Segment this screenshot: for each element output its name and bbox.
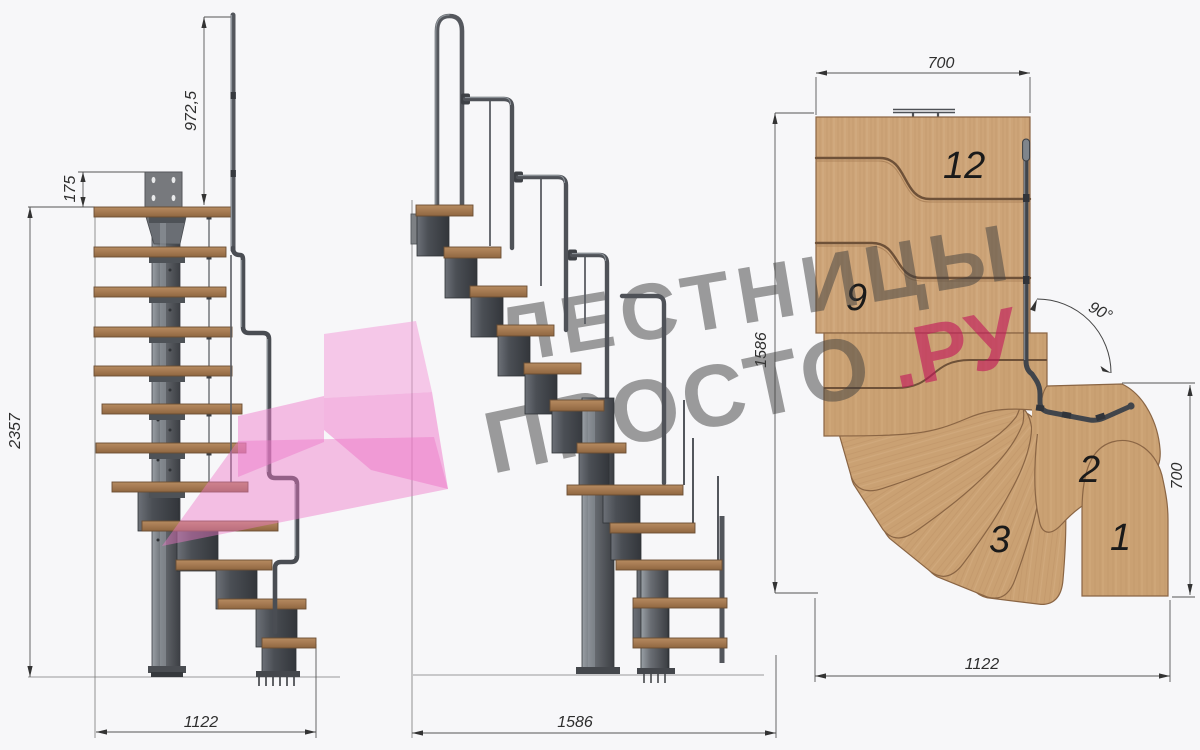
svg-text:12: 12 (943, 145, 985, 187)
svg-text:2357: 2357 (7, 412, 24, 450)
svg-text:1122: 1122 (965, 656, 1000, 673)
svg-text:3: 3 (989, 519, 1010, 561)
svg-text:175: 175 (62, 176, 79, 203)
svg-text:1: 1 (1110, 517, 1131, 559)
svg-text:700: 700 (928, 55, 955, 72)
svg-text:2: 2 (1078, 449, 1100, 491)
svg-text:1122: 1122 (184, 714, 219, 731)
svg-text:1586: 1586 (557, 714, 593, 731)
svg-text:700: 700 (1169, 463, 1186, 490)
svg-text:972,5: 972,5 (183, 91, 200, 131)
